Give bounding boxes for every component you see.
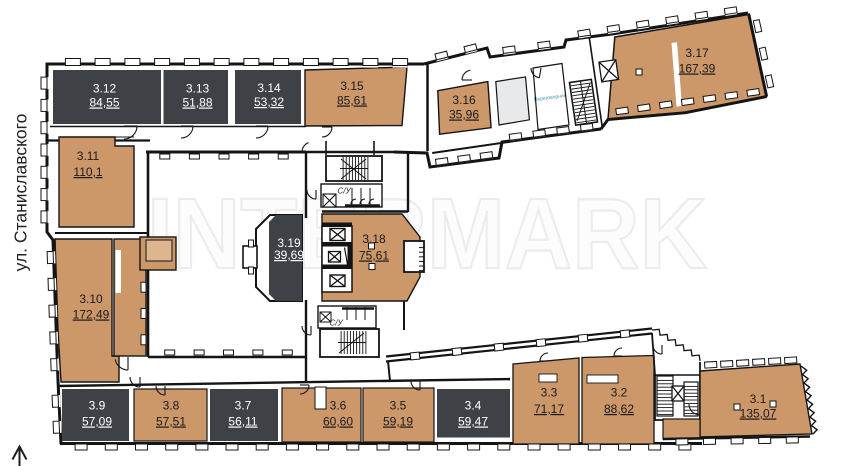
svg-text:3.7: 3.7 (235, 399, 252, 413)
svg-text:172,49: 172,49 (73, 308, 110, 322)
svg-text:88,62: 88,62 (604, 402, 634, 416)
svg-text:39,69: 39,69 (274, 248, 304, 262)
svg-text:59,47: 59,47 (458, 415, 488, 429)
svg-text:35,96: 35,96 (449, 108, 479, 122)
svg-text:3.12: 3.12 (93, 82, 117, 96)
svg-text:3.8: 3.8 (163, 399, 180, 413)
svg-text:3.4: 3.4 (465, 399, 482, 413)
svg-text:3.14: 3.14 (257, 81, 281, 95)
svg-text:85,61: 85,61 (337, 94, 367, 108)
svg-text:3.15: 3.15 (340, 79, 364, 93)
svg-text:84,55: 84,55 (89, 96, 119, 110)
svg-text:С/У: С/У (329, 319, 343, 328)
svg-text:3.11: 3.11 (77, 149, 100, 163)
svg-text:53,32: 53,32 (254, 95, 284, 109)
svg-text:110,1: 110,1 (73, 165, 102, 179)
svg-text:51,88: 51,88 (182, 96, 212, 110)
svg-text:75,61: 75,61 (359, 249, 389, 263)
svg-text:60,60: 60,60 (323, 415, 353, 429)
svg-text:71,17: 71,17 (534, 402, 564, 416)
svg-text:3.5: 3.5 (390, 399, 407, 413)
svg-text:INTERMARK: INTERMARK (147, 178, 707, 290)
svg-text:167,39: 167,39 (679, 62, 716, 76)
svg-text:57,09: 57,09 (82, 415, 112, 429)
svg-text:56,11: 56,11 (228, 415, 257, 429)
svg-text:3.9: 3.9 (89, 399, 106, 413)
svg-text:С/У: С/У (337, 187, 351, 196)
svg-text:3.10: 3.10 (79, 292, 103, 306)
svg-text:3.13: 3.13 (186, 82, 210, 96)
svg-text:3.1: 3.1 (750, 392, 767, 406)
svg-text:3.17: 3.17 (685, 46, 709, 60)
svg-text:ул. Станиславского: ул. Станиславского (11, 114, 31, 272)
svg-text:3.2: 3.2 (611, 386, 628, 400)
svg-text:3.6: 3.6 (330, 399, 347, 413)
svg-text:57,51: 57,51 (156, 415, 186, 429)
svg-text:3.16: 3.16 (452, 93, 476, 107)
svg-text:3.3: 3.3 (541, 386, 558, 400)
svg-text:59,19: 59,19 (383, 415, 413, 429)
svg-text:135,07: 135,07 (740, 407, 777, 421)
